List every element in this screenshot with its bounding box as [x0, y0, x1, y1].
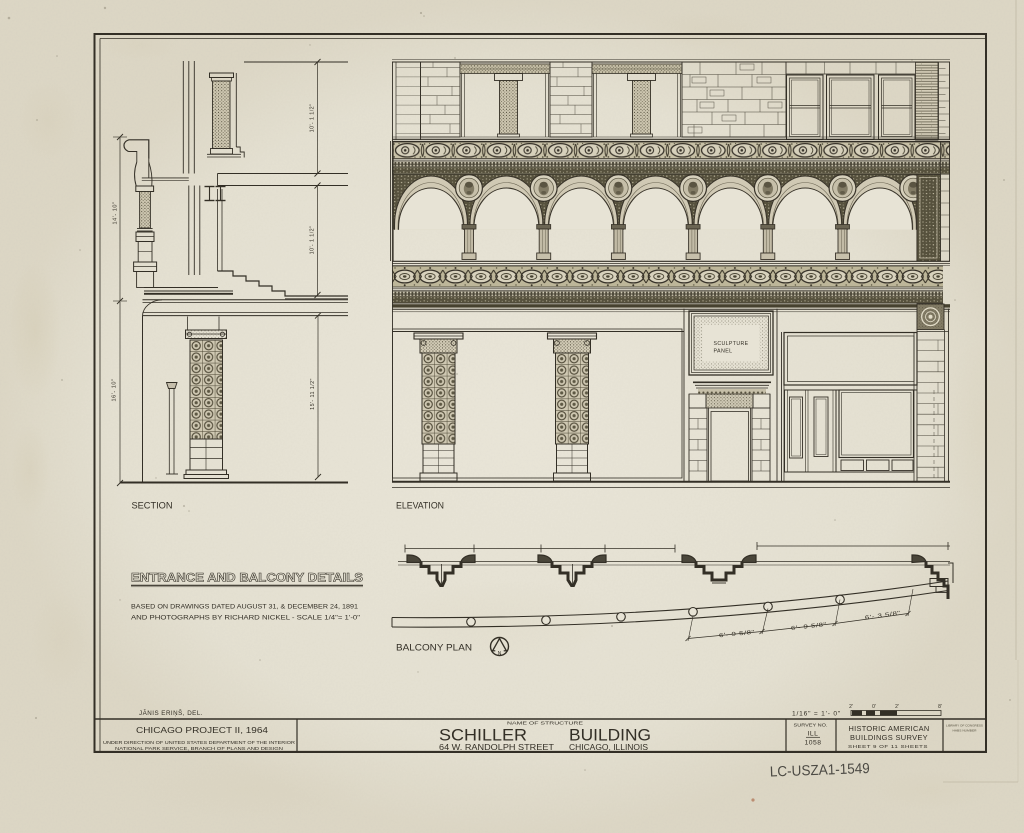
- svg-text:ELEVATION: ELEVATION: [396, 501, 444, 511]
- svg-text:BALCONY PLAN: BALCONY PLAN: [396, 643, 472, 653]
- svg-text:N: N: [498, 651, 502, 657]
- svg-text:CHICAGO, ILLINOIS: CHICAGO, ILLINOIS: [569, 743, 649, 752]
- svg-text:SHEET 9 OF 11 SHEETS: SHEET 9 OF 11 SHEETS: [848, 744, 928, 750]
- svg-text:JĀNIS ERIŅŠ, DEL.: JĀNIS ERIŅŠ, DEL.: [139, 708, 203, 717]
- svg-text:2': 2': [895, 704, 899, 710]
- svg-text:LIBRARY OF CONGRESS: LIBRARY OF CONGRESS: [946, 724, 983, 728]
- svg-text:ILL: ILL: [808, 731, 819, 738]
- svg-text:64 W. RANDOLPH STREET: 64 W. RANDOLPH STREET: [439, 743, 554, 752]
- svg-text:10'- 1 1/2": 10'- 1 1/2": [310, 226, 316, 255]
- svg-text:AND PHOTOGRAPHS BY RICHARD NIC: AND PHOTOGRAPHS BY RICHARD NICKEL - SCAL…: [131, 615, 360, 622]
- svg-text:1058: 1058: [804, 740, 821, 747]
- svg-text:16'- 10": 16'- 10": [112, 379, 118, 402]
- svg-text:ENTRANCE AND BALCONY DETAILS: ENTRANCE AND BALCONY DETAILS: [131, 571, 363, 585]
- svg-text:SECTION: SECTION: [132, 501, 173, 511]
- svg-text:SURVEY NO.: SURVEY NO.: [794, 723, 828, 729]
- svg-text:0': 0': [872, 704, 876, 710]
- svg-text:8': 8': [938, 704, 942, 710]
- svg-text:14'- 10": 14'- 10": [113, 202, 119, 225]
- svg-text:BUILDINGS SURVEY: BUILDINGS SURVEY: [850, 733, 928, 742]
- svg-text:HISTORIC AMERICAN: HISTORIC AMERICAN: [849, 724, 930, 733]
- svg-text:UNDER DIRECTION OF UNITED STAT: UNDER DIRECTION OF UNITED STATES DEPARTM…: [103, 740, 296, 746]
- svg-text:1/16" = 1'- 0": 1/16" = 1'- 0": [792, 711, 841, 718]
- svg-text:HABS NUMBER: HABS NUMBER: [953, 729, 978, 733]
- svg-text:PANEL: PANEL: [714, 349, 733, 355]
- svg-text:2': 2': [849, 704, 853, 710]
- svg-text:BUILDING: BUILDING: [569, 727, 651, 745]
- svg-text:BASED ON DRAWINGS DATED AUGUST: BASED ON DRAWINGS DATED AUGUST 31, & DEC…: [131, 604, 359, 611]
- svg-text:SCHILLER: SCHILLER: [439, 727, 527, 745]
- svg-text:CHICAGO PROJECT II, 1964: CHICAGO PROJECT II, 1964: [136, 725, 268, 735]
- svg-text:15'- 11 1/2": 15'- 11 1/2": [310, 378, 316, 410]
- svg-text:NATIONAL PARK SERVICE, BRANCH: NATIONAL PARK SERVICE, BRANCH OF PLANS A…: [115, 746, 284, 752]
- svg-text:SCULPTURE: SCULPTURE: [714, 341, 749, 347]
- svg-text:10'- 1 1/2": 10'- 1 1/2": [310, 104, 316, 133]
